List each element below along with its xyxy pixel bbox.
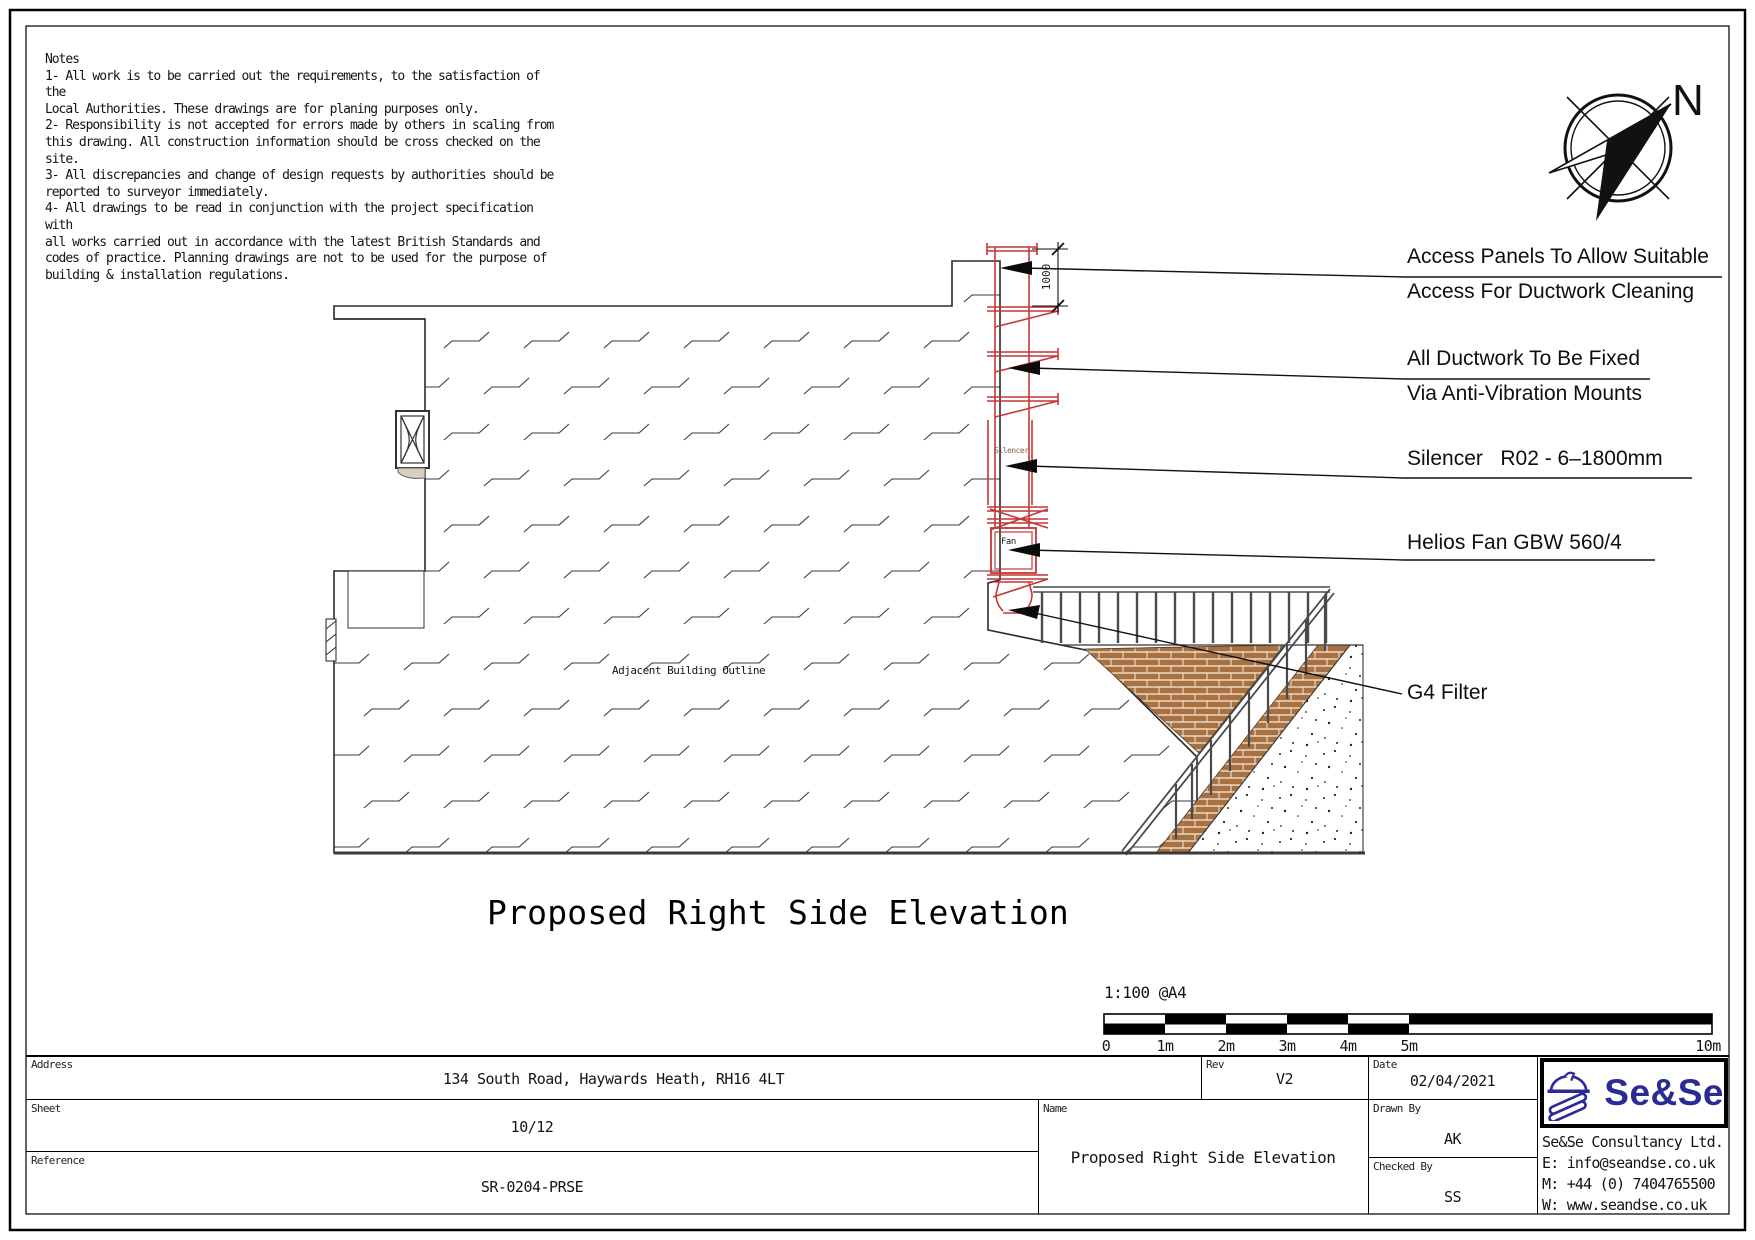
drawn-by-value: AK [1368,1130,1537,1148]
scale-tick-4m: 4m [1339,1037,1356,1055]
adjacent-building [334,261,1197,853]
scale-tick-0: 0 [1102,1037,1111,1055]
wall-recess [348,571,424,628]
reference-value: SR-0204-PRSE [26,1178,1038,1196]
company-web: W: www.seandse.co.uk [1542,1196,1707,1214]
sheet-label: Sheet [31,1102,61,1115]
drawing-sheet: Notes 1- All work is to be carried out t… [0,0,1755,1240]
scale-tick-1m: 1m [1156,1037,1173,1055]
annotation-filter: G4 Filter [1407,681,1488,705]
compass-north-label: N [1672,76,1704,126]
hardhat-pipes-icon [1544,1065,1600,1121]
annotation-fan: Helios Fan GBW 560/4 [1407,531,1622,555]
company-email: E: info@seandse.co.uk [1542,1154,1715,1172]
rev-value: V2 [1201,1070,1368,1088]
date-value: 02/04/2021 [1368,1072,1537,1090]
checked-by-label: Checked By [1373,1160,1432,1173]
drawing-title: Proposed Right Side Elevation [487,893,1047,932]
adjacent-building-label: Adjacent Building Outline [612,664,765,677]
leader-arrowheads [1000,261,1040,619]
company-logo: Se&Se [1540,1058,1728,1128]
scale-tick-3m: 3m [1278,1037,1295,1055]
scale-tick-2m: 2m [1217,1037,1234,1055]
annotation-silencer: Silencer R02 - 6–1800mm [1407,447,1663,471]
date-label: Date [1373,1058,1397,1071]
notes-block: Notes 1- All work is to be carried out t… [45,52,565,284]
reference-label: Reference [31,1154,84,1167]
duct-dimension-label: 1000 [1040,257,1054,297]
wall-louvre [396,411,429,478]
name-label: Name [1043,1102,1067,1115]
company-mobile: M: +44 (0) 7404765500 [1542,1175,1715,1193]
logo-text: Se&Se [1604,1072,1724,1114]
checked-by-value: SS [1368,1188,1537,1206]
duct-silencer-label: Silencer [994,446,1029,455]
name-value: Proposed Right Side Elevation [1038,1148,1368,1167]
scale-tick-5m: 5m [1400,1037,1417,1055]
louvre-sill [398,468,425,478]
annotation-ductwork-line2: Via Anti-Vibration Mounts [1407,382,1642,406]
company-name: Se&Se Consultancy Ltd. [1542,1133,1723,1151]
annotation-access-panels-line1: Access Panels To Allow Suitable [1407,245,1709,269]
leader-lines [1022,268,1722,694]
compass-icon [1549,95,1671,221]
duct-fan-label: Fan [1001,537,1016,547]
wall-bracket [326,619,336,661]
drawn-by-label: Drawn By [1373,1102,1420,1115]
annotation-access-panels-line2: Access For Ductwork Cleaning [1407,280,1694,304]
sheet-value: 10/12 [26,1118,1038,1136]
scale-label: 1:100 @A4 [1104,983,1186,1002]
scale-tick-10m: 10m [1695,1037,1721,1055]
address-value: 134 South Road, Haywards Heath, RH16 4LT [26,1070,1201,1088]
scale-bar [1104,1014,1712,1034]
annotation-ductwork-line1: All Ductwork To Be Fixed [1407,347,1640,371]
